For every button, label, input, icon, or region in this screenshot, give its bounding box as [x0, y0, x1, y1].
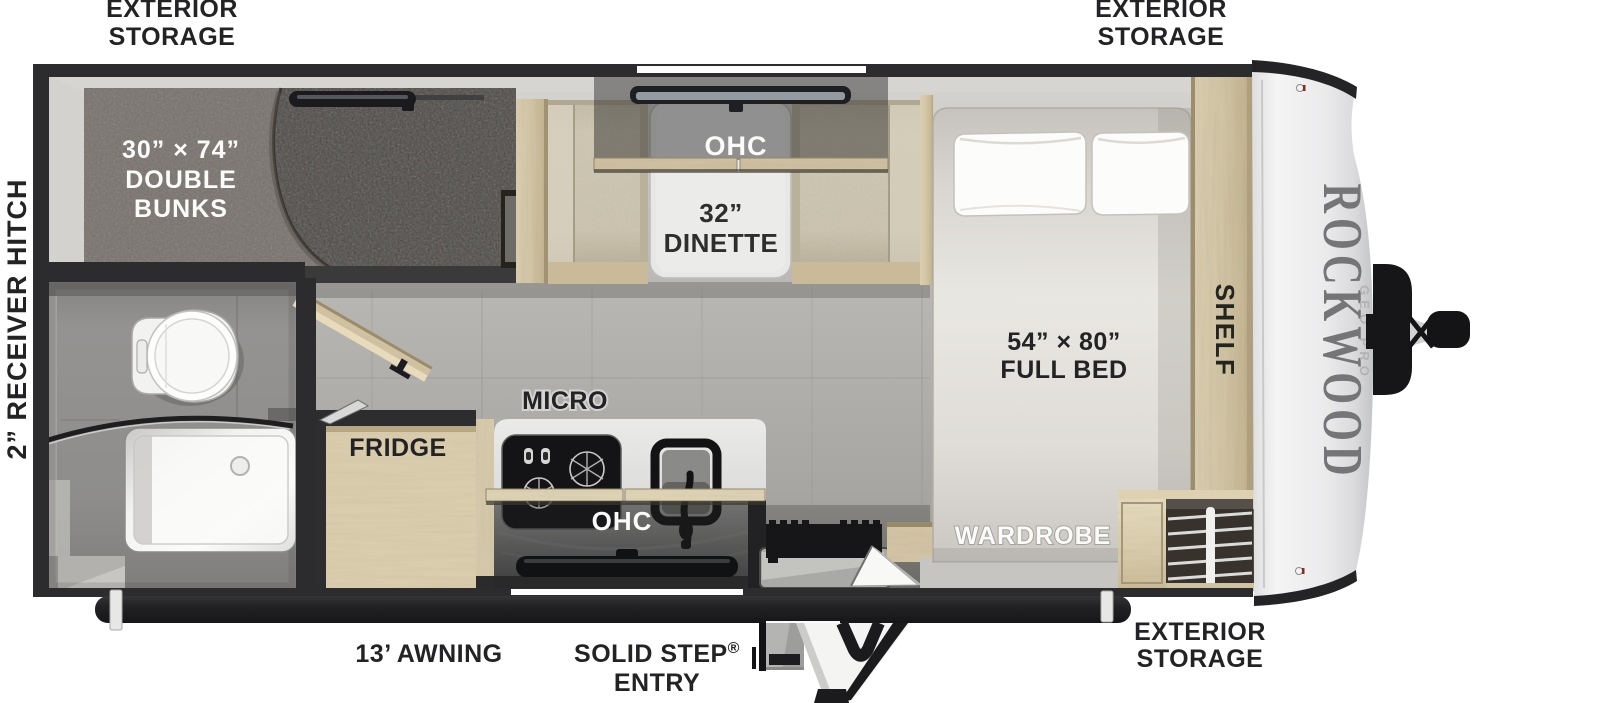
svg-text:FULL BED: FULL BED [1000, 356, 1127, 384]
svg-text:32”: 32” [699, 198, 742, 228]
svg-text:MICRO: MICRO [522, 387, 608, 415]
svg-text:DINETTE: DINETTE [664, 228, 779, 258]
svg-text:2” RECEIVER HITCH: 2” RECEIVER HITCH [2, 178, 32, 459]
svg-text:EXTERIOR: EXTERIOR [106, 0, 238, 23]
svg-text:STORAGE: STORAGE [109, 23, 236, 51]
svg-text:SHELF: SHELF [1210, 284, 1240, 377]
svg-text:EXTERIOR: EXTERIOR [1134, 618, 1266, 646]
svg-text:EXTERIOR: EXTERIOR [1095, 0, 1227, 23]
svg-text:STORAGE: STORAGE [1137, 645, 1264, 673]
svg-text:WARDROBE: WARDROBE [955, 522, 1112, 550]
svg-text:DOUBLE: DOUBLE [125, 166, 237, 194]
svg-text:SOLID STEP®: SOLID STEP® [574, 640, 740, 668]
svg-text:OHC: OHC [592, 506, 653, 536]
svg-text:BUNKS: BUNKS [134, 195, 228, 223]
svg-text:13’ AWNING: 13’ AWNING [355, 640, 502, 668]
svg-text:30” × 74”: 30” × 74” [122, 136, 240, 164]
svg-text:ENTRY: ENTRY [614, 669, 700, 697]
svg-text:OHC: OHC [705, 131, 768, 161]
svg-text:STORAGE: STORAGE [1098, 23, 1225, 51]
svg-text:54” × 80”: 54” × 80” [1007, 328, 1121, 356]
svg-text:FRIDGE: FRIDGE [349, 434, 446, 462]
